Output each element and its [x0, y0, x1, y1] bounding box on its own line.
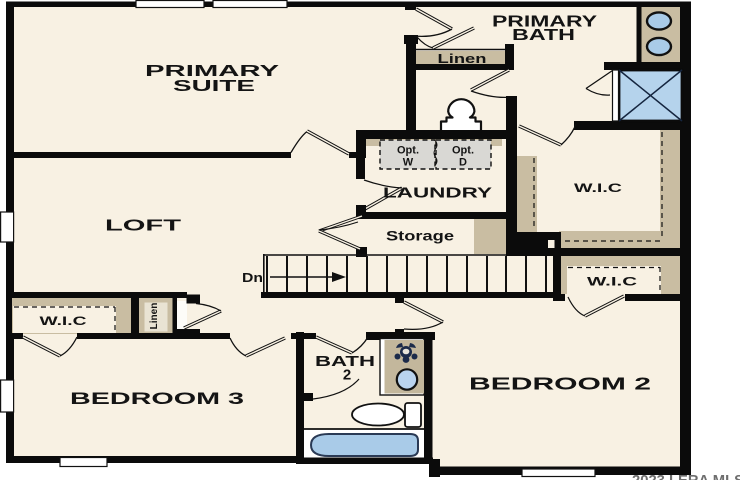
svg-text:Opt.: Opt.: [452, 145, 474, 157]
svg-text:BEDROOM 3: BEDROOM 3: [70, 389, 244, 408]
svg-text:Dn: Dn: [242, 270, 263, 285]
svg-text:BATH: BATH: [512, 27, 575, 44]
svg-text:W.I.C: W.I.C: [587, 275, 638, 289]
svg-text:BEDROOM 2: BEDROOM 2: [469, 374, 651, 394]
svg-text:2: 2: [343, 367, 351, 384]
svg-text:SUITE: SUITE: [173, 78, 255, 95]
svg-text:W.I.C: W.I.C: [574, 181, 623, 195]
svg-text:Linen: Linen: [149, 303, 160, 330]
svg-text:LAUNDRY: LAUNDRY: [383, 185, 492, 202]
svg-text:Opt.: Opt.: [397, 145, 419, 157]
svg-text:W: W: [403, 157, 414, 169]
svg-text:W.I.C: W.I.C: [40, 314, 88, 328]
svg-text:D: D: [459, 157, 467, 169]
svg-text:Storage: Storage: [386, 228, 454, 244]
svg-text:2023 LERA MLS: 2023 LERA MLS: [632, 472, 740, 480]
svg-text:Linen: Linen: [438, 52, 487, 66]
svg-text:LOFT: LOFT: [105, 218, 182, 235]
